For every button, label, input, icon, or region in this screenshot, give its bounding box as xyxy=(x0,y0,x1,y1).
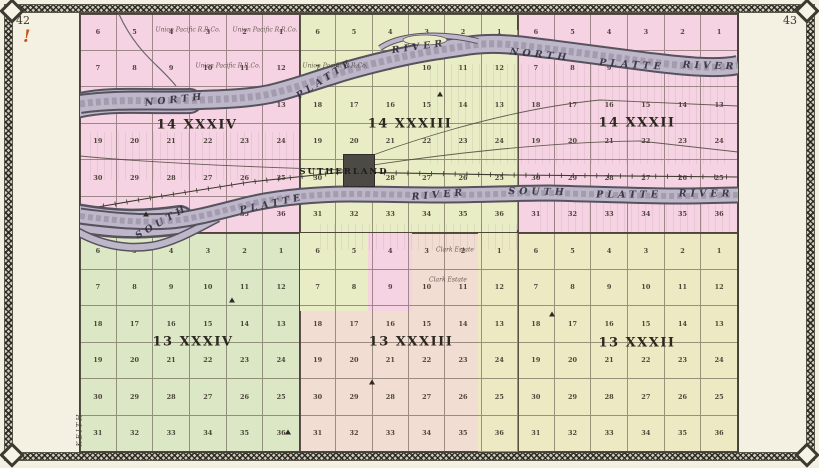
landowner-label: Union Pacific R.R.Co. xyxy=(156,27,221,34)
decorative-border-bottom xyxy=(4,452,815,461)
atlas-page: 42 43 ! KEITH 65432178910111218171615141… xyxy=(0,0,819,465)
sutherland-town-label: SUTHERLAND xyxy=(284,167,404,177)
landowner-label: Union Pacific R.R.Co. xyxy=(196,63,261,70)
school-marker xyxy=(285,430,291,435)
school-marker xyxy=(229,298,235,303)
school-marker xyxy=(369,380,375,385)
river-label: RIVER xyxy=(679,189,734,200)
river-label: NORTH xyxy=(144,91,206,108)
river-label: RIVER xyxy=(411,187,467,203)
map-labels: SUTHERLAND 14 XXXIV14 XXXIII14 XXXII13 X… xyxy=(80,14,738,452)
township-label-13-xxxiv: 13 XXXIV xyxy=(152,335,233,350)
township-label-13-xxxiii: 13 XXXIII xyxy=(369,335,454,350)
plat-map: 6543217891011121817161514131920212223243… xyxy=(80,14,738,452)
margin-exclamation-mark: ! xyxy=(23,27,30,47)
landowner-label: Clark Estate xyxy=(436,247,474,254)
township-label-13-xxxii: 13 XXXII xyxy=(598,336,675,351)
school-marker xyxy=(437,92,443,97)
river-label: RIVER xyxy=(391,38,447,57)
decorative-border-right xyxy=(806,4,815,461)
river-label: SOUTH xyxy=(133,202,190,241)
border-corner-ornament xyxy=(794,442,819,467)
township-label-14-xxxiv: 14 XXXIV xyxy=(156,118,237,133)
school-marker xyxy=(549,312,555,317)
page-number-left: 42 xyxy=(16,14,30,27)
river-label: NORTH xyxy=(509,46,571,63)
decorative-border-top xyxy=(4,4,815,13)
landowner-label: Clark Estate xyxy=(429,277,467,284)
township-label-14-xxxiii: 14 XXXIII xyxy=(368,117,453,132)
landowner-label: Union Pacific R.R.Co. xyxy=(233,27,298,34)
river-label: SOUTH xyxy=(508,186,568,198)
township-label-14-xxxii: 14 XXXII xyxy=(598,116,675,131)
river-label: PLATTE xyxy=(599,57,665,73)
decorative-border-left xyxy=(4,4,13,461)
river-label: RIVER xyxy=(682,60,737,73)
landowner-label: Union Pacific R.R.Co. xyxy=(303,63,368,70)
page-number-right: 43 xyxy=(783,14,797,27)
school-marker xyxy=(143,212,149,217)
river-label: PLATTE xyxy=(239,192,306,216)
river-label: PLATTE xyxy=(596,190,662,201)
adjacent-county-label: KEITH xyxy=(76,407,87,453)
